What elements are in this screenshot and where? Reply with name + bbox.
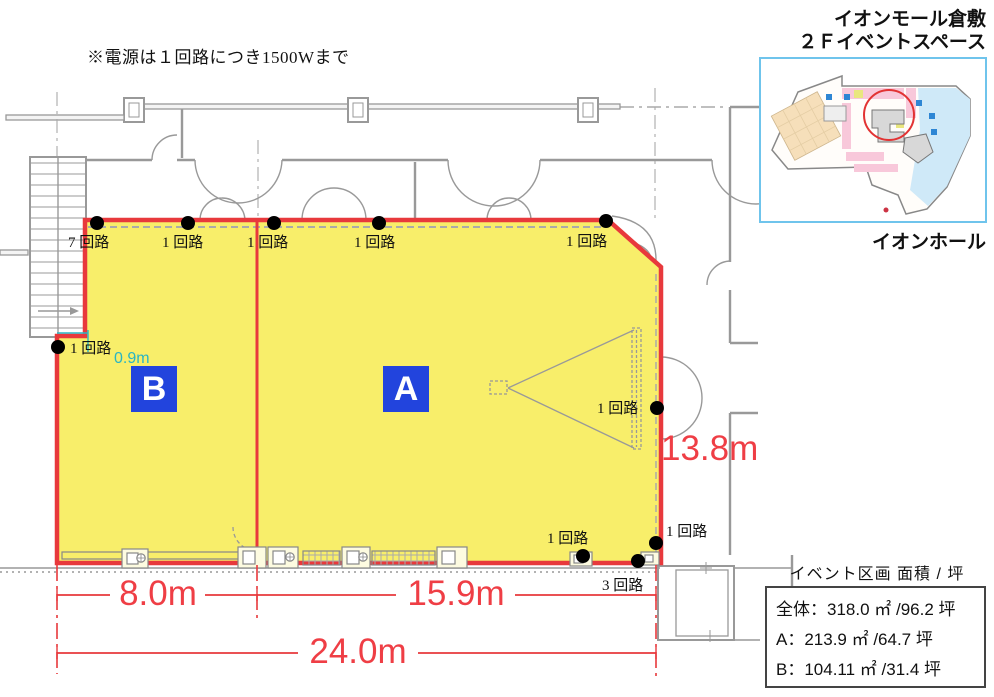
info-row-total: 全体：318.0 ㎡ /96.2 坪 <box>776 595 984 620</box>
left-stub-wall <box>6 115 124 120</box>
outlet-dot <box>267 216 281 230</box>
dimension-height: 13.8m <box>661 429 758 469</box>
circuit-label: 1 回路 <box>70 337 111 358</box>
mall-court <box>824 106 846 121</box>
room-door-arc <box>707 261 731 285</box>
bench-hatched <box>303 551 340 565</box>
outlet-dot <box>181 216 195 230</box>
left-stub-wall-2 <box>0 250 28 255</box>
double-door-arc <box>487 198 531 220</box>
zone-b-label: B <box>131 366 177 412</box>
circuit-label: 1 回路 <box>162 231 203 252</box>
info-row-a: A：213.9 ㎡ /64.7 坪 <box>776 625 984 650</box>
map-title-line1: イオンモール倉敷 <box>740 8 986 31</box>
column <box>124 98 598 122</box>
circuit-label: 7 回路 <box>68 231 109 252</box>
circuit-label: 1 回路 <box>666 520 707 541</box>
outlet-dot <box>90 216 104 230</box>
dimension-total-width: 24.0m <box>298 632 418 672</box>
double-door-arc <box>448 160 540 206</box>
outlet-dot <box>650 401 664 415</box>
power-note: ※電源は１回路につき1500Wまで <box>87 43 350 68</box>
circuit-label: 1 回路 <box>547 527 588 548</box>
map-title: イオンモール倉敷 ２Ｆイベントスペース <box>740 8 986 54</box>
outlet-dot <box>631 554 645 568</box>
info-box-title: イベント区画 面積 / 坪 <box>768 560 986 584</box>
dimension-b-width: 8.0m <box>108 574 208 614</box>
circuit-label: 1 回路 <box>247 231 288 252</box>
partition-wall <box>182 109 415 218</box>
door-arc <box>152 135 177 160</box>
double-door-arc <box>200 198 245 220</box>
outlet-dot <box>372 216 386 230</box>
outlet-dot <box>576 549 590 563</box>
circuit-label: 1 回路 <box>566 230 607 251</box>
map-title-line2: ２Ｆイベントスペース <box>740 31 986 54</box>
top-wall <box>140 104 620 109</box>
map-red-dot <box>884 208 889 213</box>
circuit-label: 1 回路 <box>354 231 395 252</box>
circuit-label: 1 回路 <box>597 397 638 418</box>
dimension-a-width: 15.9m <box>396 574 516 614</box>
outlet-dot <box>649 536 663 550</box>
zone-a-label: A <box>383 366 429 412</box>
map-caption: イオンホール <box>740 227 986 254</box>
area-info-box: 全体：318.0 ㎡ /96.2 坪 A：213.9 ㎡ /64.7 坪 B：1… <box>765 586 986 688</box>
mall-mini-map <box>760 58 986 222</box>
outlet-dot <box>51 340 65 354</box>
info-row-b: B：104.11 ㎡ /31.4 坪 <box>776 655 984 680</box>
right-double-door-arc <box>661 357 702 439</box>
circuit-label: 3 回路 <box>602 574 643 595</box>
floorplan-page: ※電源は１回路につき1500Wまで 7 回路 1 回路 1 回路 1 回路 1 … <box>0 0 994 697</box>
double-door-arc <box>195 160 282 203</box>
double-door-arc <box>302 188 366 220</box>
bench-hatched <box>372 551 435 565</box>
outlet-dot <box>599 214 613 228</box>
